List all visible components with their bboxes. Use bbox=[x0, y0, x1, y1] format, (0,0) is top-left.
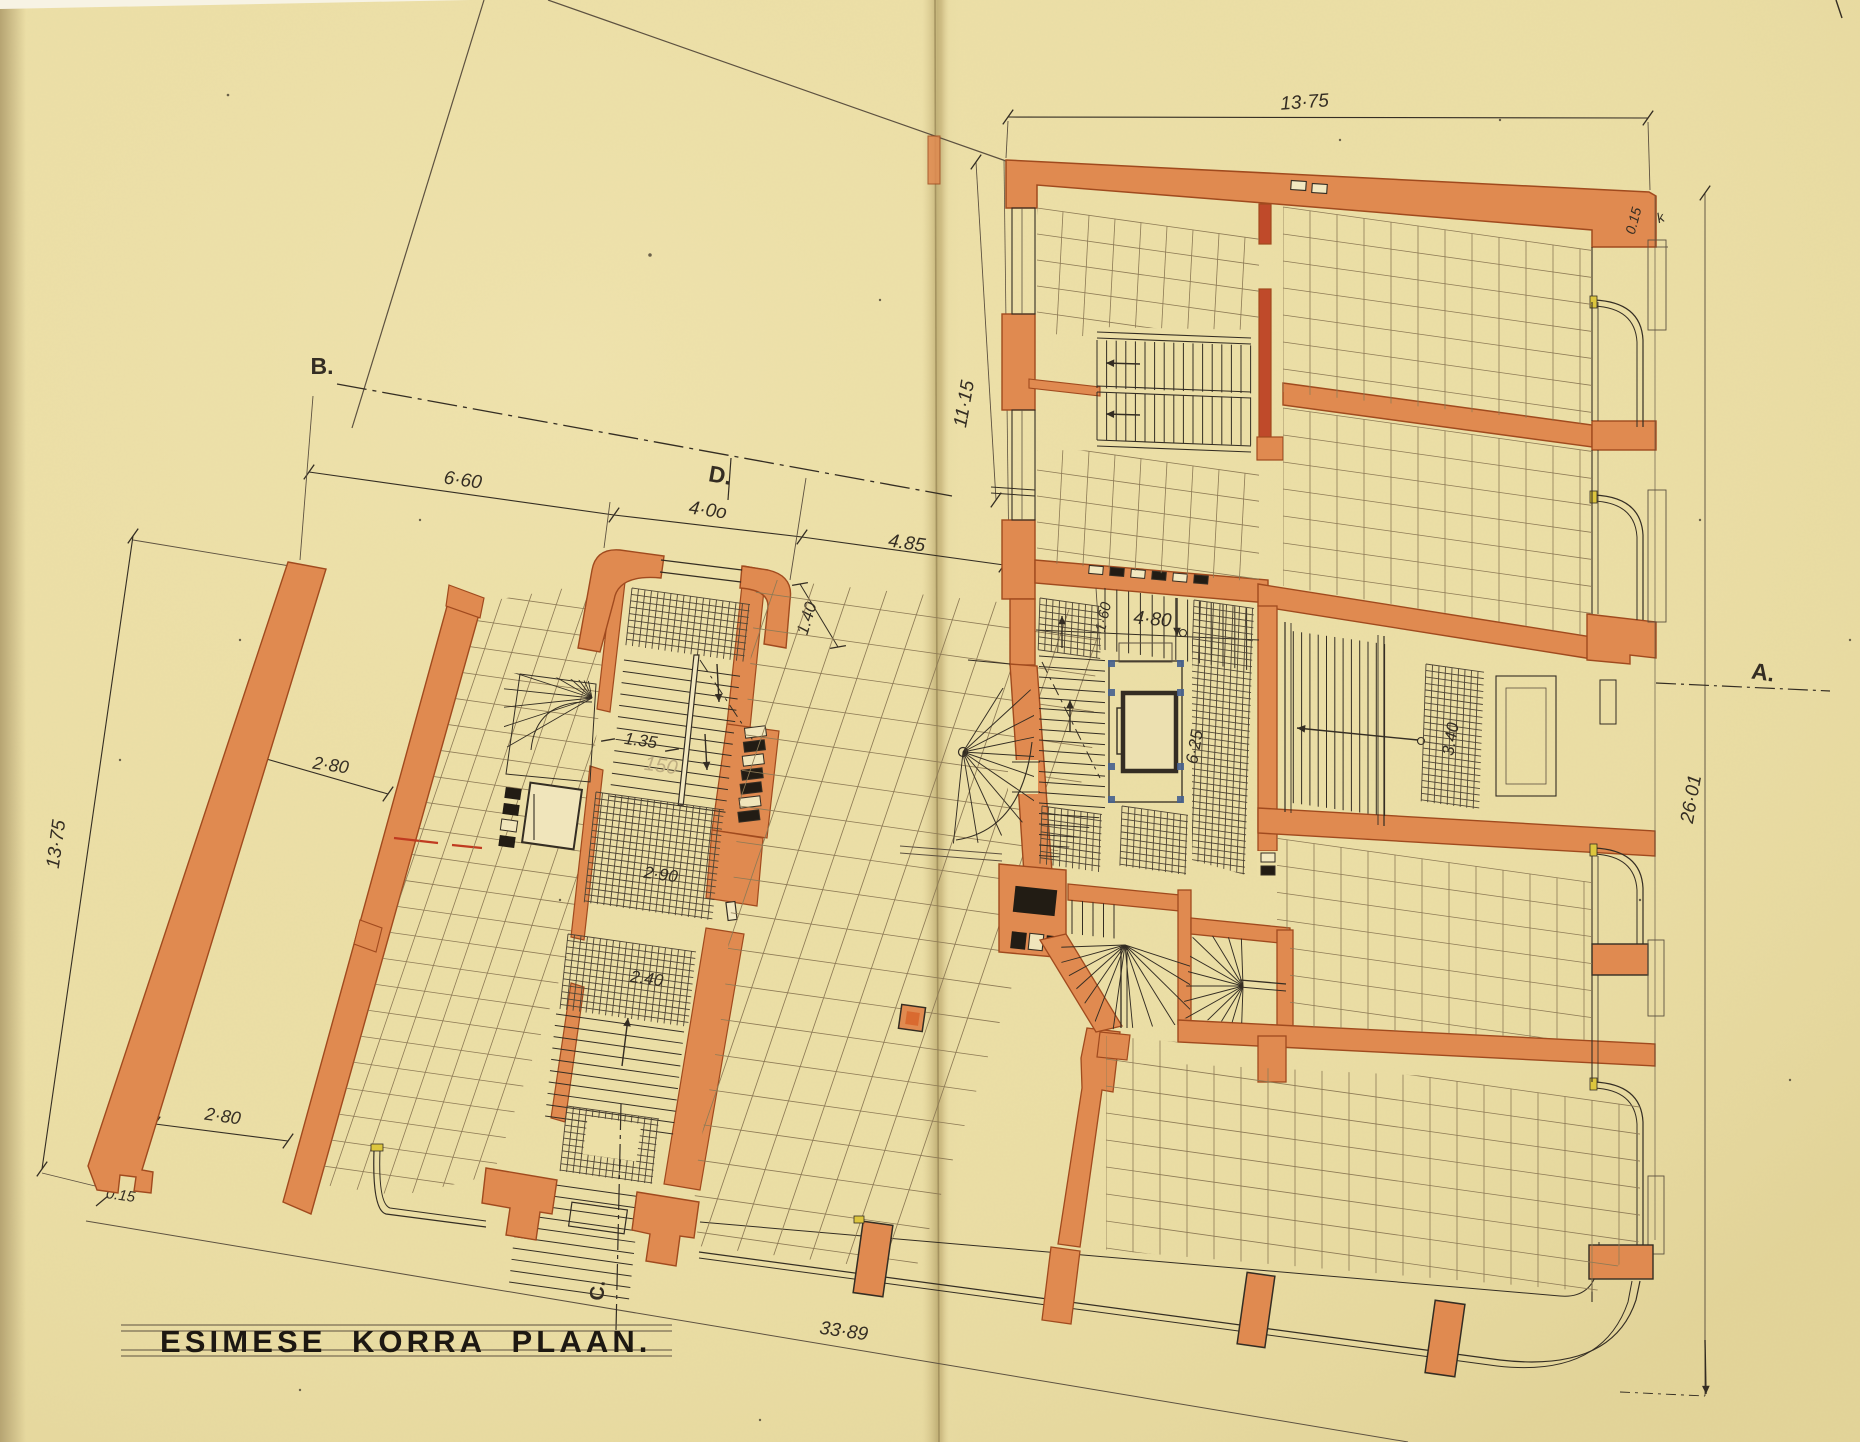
svg-text:13·75: 13·75 bbox=[1280, 90, 1330, 114]
svg-text:ESIMESE KORRA PLAAN.: ESIMESE KORRA PLAAN. bbox=[160, 1324, 652, 1359]
svg-text:C.: C. bbox=[586, 1280, 610, 1302]
svg-text:4·80: 4·80 bbox=[1133, 607, 1173, 631]
svg-text:150: 150 bbox=[643, 753, 679, 779]
svg-text:B.: B. bbox=[311, 353, 334, 379]
svg-text:A.: A. bbox=[1750, 658, 1776, 687]
